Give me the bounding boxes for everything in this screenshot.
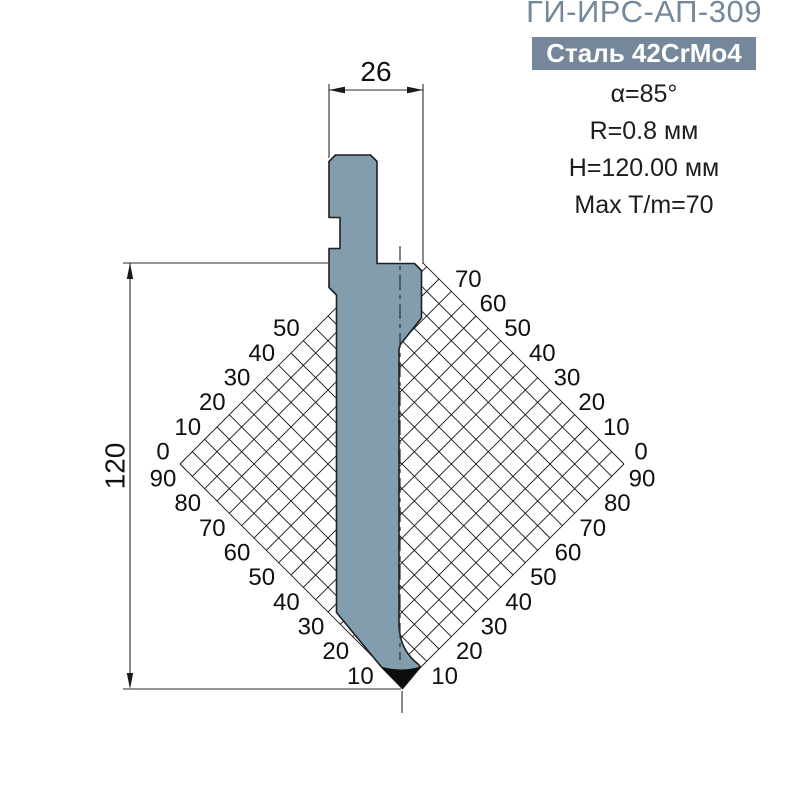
gauge-scale-label-lower_right: 70 [579, 515, 606, 542]
gauge-scale-label-lower_right: 10 [431, 663, 458, 690]
punch-tip [381, 667, 421, 689]
gauge-scale-label-upper_right: 40 [529, 340, 556, 367]
gauge-scale-label-upper_right: 0 [634, 439, 647, 466]
arrow-up-icon [127, 263, 133, 279]
arrow-left-icon [329, 87, 345, 94]
gauge-scale-label-upper_right: 30 [554, 365, 581, 392]
gauge-scale-label-lower_left: 80 [174, 490, 201, 517]
gauge-scale-label-upper_right: 20 [578, 389, 605, 416]
spec-angle: α=85° [488, 76, 800, 113]
gauge-scale-label-lower_right: 40 [505, 589, 532, 616]
gauge-scale-label-lower_right: 30 [481, 614, 508, 641]
width-dim-label: 26 [360, 56, 391, 87]
gauge-scale-label-upper_left: 0 [156, 439, 169, 466]
spec-height: H=120.00 мм [488, 150, 800, 187]
gauge-scale-label-upper_right: 70 [455, 266, 482, 293]
gauge-scale-label-lower_left: 20 [322, 638, 349, 665]
gauge-scale-label-lower_left: 90 [150, 466, 177, 493]
gauge-scale-label-lower_right: 20 [456, 638, 483, 665]
gauge-scale-label-lower_right: 50 [530, 564, 557, 591]
gauge-scale-label-upper_left: 30 [224, 365, 251, 392]
tool-info-panel: ГИ-ИРС-АП-309 Сталь 42CrMo4 α=85° R=0.8 … [488, 0, 800, 224]
gauge-scale-label-upper_left: 40 [248, 340, 275, 367]
gauge-scale-label-upper_left: 10 [174, 414, 201, 441]
drawing-canvas: 26 120 010203040509080706050403020100102… [0, 0, 800, 800]
gauge-scale-label-upper_left: 20 [199, 389, 226, 416]
gauge-scale-label-upper_right: 50 [504, 315, 531, 342]
tool-title: ГИ-ИРС-АП-309 [488, 0, 800, 28]
gauge-scale-label-upper_right: 60 [480, 291, 507, 318]
gauge-scale-label-lower_left: 70 [199, 515, 226, 542]
gauge-scale-label-lower_left: 40 [273, 589, 300, 616]
spec-radius: R=0.8 мм [488, 113, 800, 150]
gauge-scale-label-lower_left: 60 [224, 540, 251, 567]
gauge-scale-label-lower_right: 80 [604, 490, 631, 517]
spec-max-load: Max T/m=70 [488, 187, 800, 224]
gauge-scale-label-lower_right: 60 [555, 540, 582, 567]
gauge-scale-label-lower_left: 10 [347, 663, 374, 690]
gauge-scale-label-upper_right: 10 [603, 414, 630, 441]
gauge-scale-label-lower_left: 30 [298, 614, 325, 641]
material-badge: Сталь 42CrMo4 [532, 37, 756, 70]
height-dim-label: 120 [100, 443, 131, 490]
gauge-scale-label-lower_left: 50 [248, 564, 275, 591]
spec-list: α=85° R=0.8 мм H=120.00 мм Max T/m=70 [488, 76, 800, 224]
arrow-down-icon [127, 673, 133, 689]
gauge-scale-label-upper_left: 50 [273, 315, 300, 342]
gauge-scale-label-lower_right: 90 [629, 466, 656, 493]
arrow-right-icon [407, 87, 423, 94]
